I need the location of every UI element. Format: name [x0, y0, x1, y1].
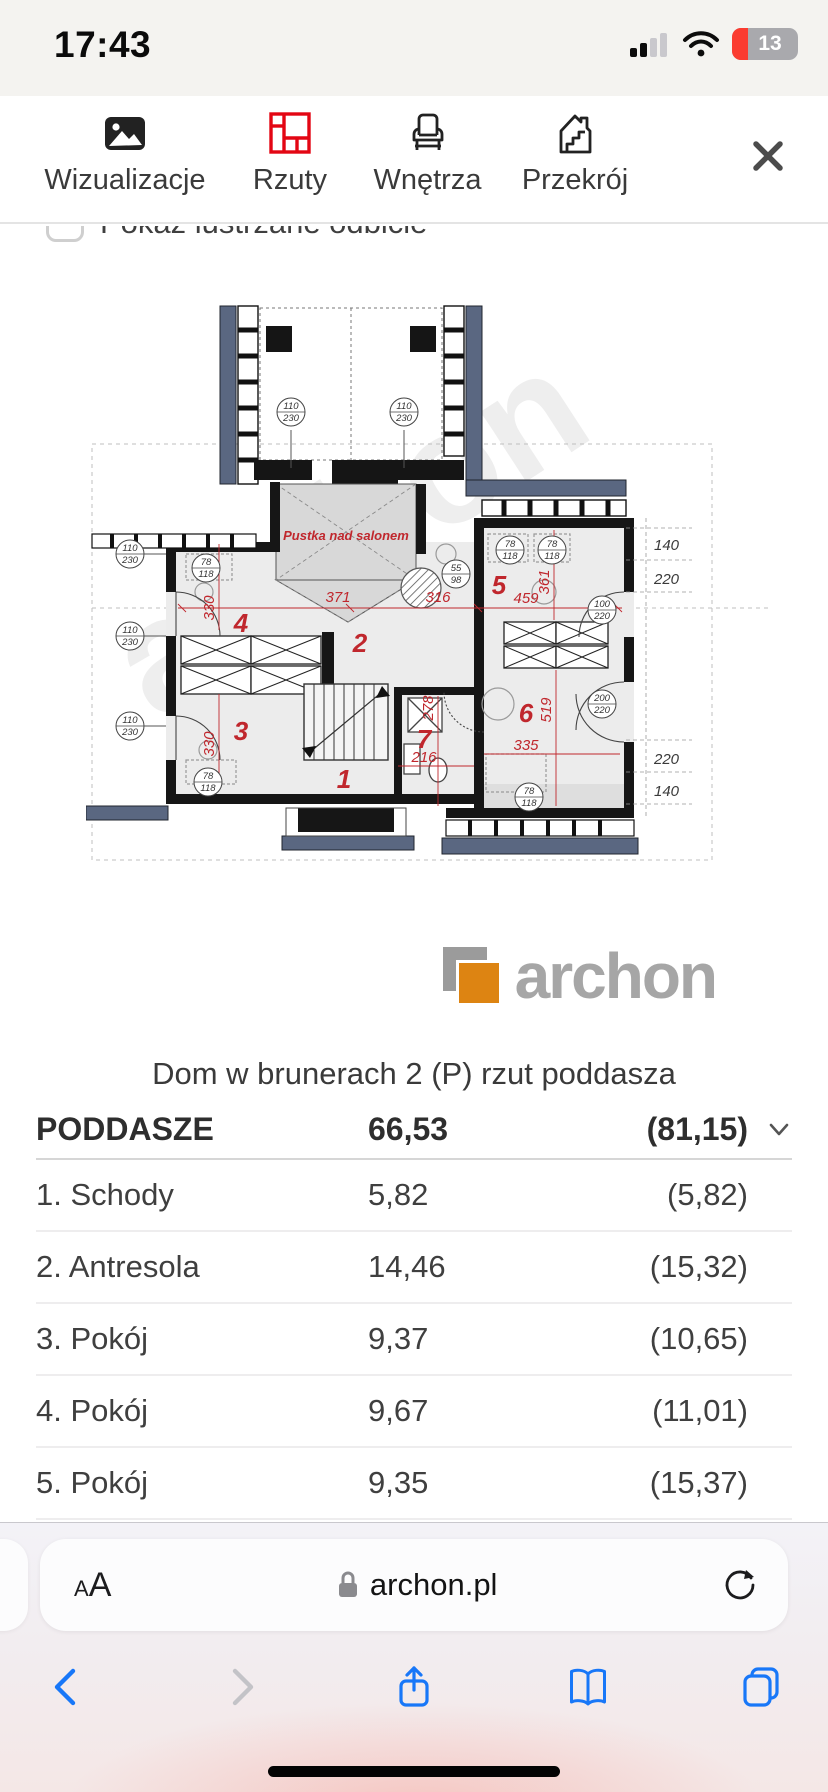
collapse-chevron-icon[interactable] [748, 1116, 792, 1142]
share-button[interactable] [391, 1664, 437, 1715]
svg-text:110: 110 [122, 715, 138, 726]
svg-text:110: 110 [396, 401, 412, 412]
floor-plan-image: archon [86, 292, 776, 872]
room-gross-area: (15,37) [598, 1465, 748, 1501]
table-row: 1. Schody 5,82 (5,82) [36, 1160, 792, 1232]
svg-text:230: 230 [121, 727, 139, 738]
svg-text:98: 98 [451, 575, 462, 586]
home-indicator[interactable] [268, 1766, 560, 1777]
svg-text:316: 316 [425, 589, 451, 606]
svg-text:278: 278 [420, 695, 437, 722]
svg-text:78: 78 [505, 539, 516, 550]
svg-text:230: 230 [121, 637, 139, 648]
tab-label: Wnętrza [374, 164, 482, 197]
area-table: PODDASZE 66,53 (81,15) 1. Schody 5,82 (5… [36, 1100, 792, 1520]
book-icon [565, 1664, 611, 1710]
floor-area: 66,53 [368, 1111, 598, 1148]
tab-label: Wizualizacje [44, 164, 205, 197]
reload-icon [722, 1567, 758, 1603]
svg-text:140: 140 [654, 783, 680, 800]
tab-label: Przekrój [522, 164, 628, 197]
forward-icon [218, 1664, 264, 1710]
svg-text:100: 100 [594, 599, 611, 610]
back-button[interactable] [44, 1664, 90, 1715]
svg-text:330: 330 [201, 731, 218, 757]
battery-percent: 13 [758, 32, 781, 56]
tab-przekroj[interactable]: Przekrój [495, 110, 655, 197]
mirror-checkbox[interactable] [46, 226, 84, 242]
reader-text-size-button[interactable]: AA [74, 1566, 111, 1605]
tab-wizualizacje[interactable]: Wizualizacje [30, 110, 220, 197]
room-name: 5. Pokój [36, 1465, 368, 1501]
table-row: 5. Pokój 9,35 (15,37) [36, 1448, 792, 1520]
svg-text:230: 230 [282, 413, 300, 424]
svg-text:220: 220 [653, 751, 680, 768]
tabs-button[interactable] [738, 1664, 784, 1715]
svg-text:140: 140 [654, 537, 680, 554]
svg-text:118: 118 [521, 798, 537, 809]
room-area: 9,37 [368, 1321, 598, 1357]
svg-text:371: 371 [325, 589, 350, 606]
svg-text:200: 200 [593, 693, 611, 704]
archon-logo-text: archon [515, 944, 716, 1008]
table-row: 3. Pokój 9,37 (10,65) [36, 1304, 792, 1376]
svg-text:3: 3 [234, 716, 249, 746]
room-area: 5,82 [368, 1177, 598, 1213]
mirror-checkbox-label: Pokaż lustrzane odbicie [100, 226, 427, 241]
back-icon [44, 1664, 90, 1710]
svg-text:78: 78 [547, 539, 558, 550]
svg-text:216: 216 [410, 749, 437, 766]
status-bar: 17:43 13 [0, 0, 828, 96]
room-area: 14,46 [368, 1249, 598, 1285]
address-bar[interactable]: AA archon.pl [40, 1539, 788, 1631]
svg-text:230: 230 [121, 555, 139, 566]
svg-text:78: 78 [203, 771, 214, 782]
svg-text:220: 220 [593, 611, 611, 622]
battery-icon: 13 [732, 28, 794, 60]
house-section-icon [552, 110, 598, 156]
floor-gross-area: (81,15) [598, 1111, 748, 1148]
svg-text:335: 335 [513, 737, 539, 754]
room-name: 4. Pokój [36, 1393, 368, 1429]
svg-text:330: 330 [201, 595, 218, 621]
svg-text:110: 110 [122, 625, 138, 636]
svg-text:118: 118 [544, 551, 560, 562]
mirror-option-row-clipped: Pokaż lustrzane odbicie [0, 226, 828, 254]
room-gross-area: (10,65) [598, 1321, 748, 1357]
clock: 17:43 [54, 24, 151, 66]
svg-text:78: 78 [201, 557, 212, 568]
tab-label: Rzuty [253, 164, 327, 197]
close-button[interactable] [748, 136, 788, 181]
view-switcher-bar: Wizualizacje Rzuty [0, 96, 828, 224]
share-icon [391, 1664, 437, 1710]
table-row: 4. Pokój 9,67 (11,01) [36, 1376, 792, 1448]
svg-text:6: 6 [519, 698, 534, 728]
staircase [302, 684, 390, 760]
close-icon [748, 136, 788, 176]
svg-text:220: 220 [653, 571, 680, 588]
page-title: Dom w brunerach 2 (P) rzut poddasza [0, 1056, 828, 1092]
void-label: Pustka nad salonem [283, 528, 409, 543]
svg-text:5: 5 [492, 570, 507, 600]
svg-text:110: 110 [283, 401, 299, 412]
tabs-icon [738, 1664, 784, 1710]
svg-text:118: 118 [198, 569, 214, 580]
bookmarks-button[interactable] [565, 1664, 611, 1715]
room-name: 3. Pokój [36, 1321, 368, 1357]
floor-name: PODDASZE [36, 1111, 368, 1148]
reload-button[interactable] [722, 1567, 758, 1603]
svg-text:519: 519 [538, 697, 555, 723]
tab-wnetrza[interactable]: Wnętrza [360, 110, 495, 197]
room-name: 2. Antresola [36, 1249, 368, 1285]
svg-text:361: 361 [536, 569, 553, 594]
svg-text:118: 118 [502, 551, 518, 562]
cellular-signal-icon [630, 30, 670, 58]
floorplan-icon [267, 110, 313, 156]
previous-tab-stub[interactable] [0, 1539, 28, 1631]
image-icon [102, 110, 148, 156]
lock-icon [336, 1570, 360, 1600]
room-gross-area: (5,82) [598, 1177, 748, 1213]
archon-logo-mark [443, 947, 501, 1005]
forward-button[interactable] [218, 1664, 264, 1715]
table-row: 2. Antresola 14,46 (15,32) [36, 1232, 792, 1304]
archon-logo: archon [443, 944, 716, 1008]
svg-text:2: 2 [352, 628, 368, 658]
svg-text:110: 110 [122, 543, 138, 554]
armchair-icon [405, 110, 451, 156]
room-gross-area: (15,32) [598, 1249, 748, 1285]
room-area: 9,35 [368, 1465, 598, 1501]
url-text: archon.pl [370, 1567, 498, 1603]
table-header-row[interactable]: PODDASZE 66,53 (81,15) [36, 1100, 792, 1160]
room-gross-area: (11,01) [598, 1393, 748, 1429]
tab-rzuty-active[interactable]: Rzuty [220, 110, 360, 197]
room-name: 1. Schody [36, 1177, 368, 1213]
wifi-icon [682, 30, 720, 58]
room-area: 9,67 [368, 1393, 598, 1429]
svg-text:118: 118 [200, 783, 216, 794]
svg-text:220: 220 [593, 705, 611, 716]
svg-text:1: 1 [337, 764, 351, 794]
svg-text:230: 230 [395, 413, 413, 424]
side-dimension-chain: 140 220 220 140 [626, 518, 692, 818]
svg-text:55: 55 [451, 563, 462, 574]
safari-bottom-bar: AA archon.pl [0, 1522, 828, 1792]
svg-text:4: 4 [233, 608, 249, 638]
safari-toolbar [0, 1651, 828, 1727]
svg-text:78: 78 [524, 786, 535, 797]
